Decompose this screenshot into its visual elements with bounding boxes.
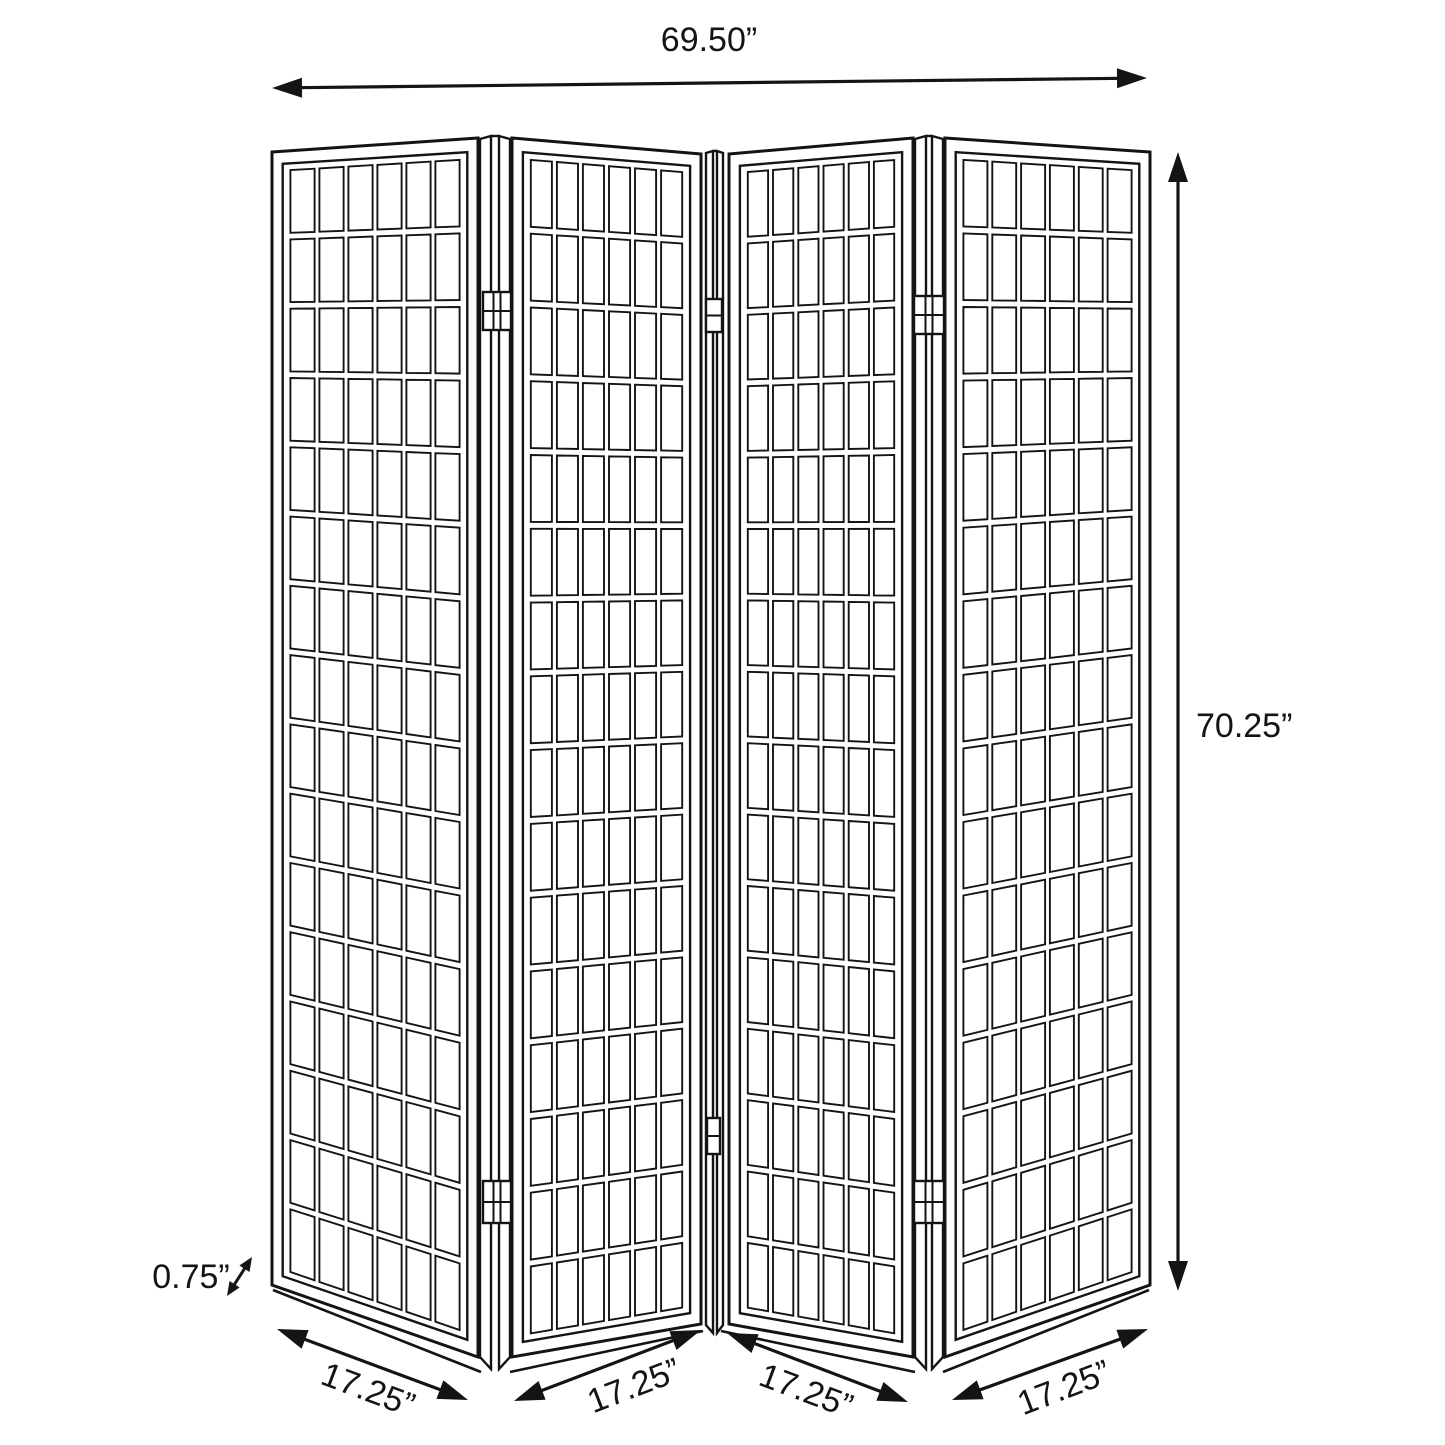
lattice-cell xyxy=(1021,236,1045,302)
lattice-cell xyxy=(290,239,314,303)
lattice-cell xyxy=(798,384,818,450)
lattice-cell xyxy=(435,1110,459,1183)
lattice-cell xyxy=(773,1247,793,1316)
lattice-cell xyxy=(798,1034,818,1102)
lattice-cell xyxy=(435,891,459,962)
lattice-cell xyxy=(824,674,844,741)
lattice-cell xyxy=(1108,1071,1132,1141)
panel-width-label-3: 17.25” xyxy=(754,1356,858,1425)
lattice-cell xyxy=(609,890,630,957)
lattice-cell xyxy=(798,962,818,1030)
lattice-cell xyxy=(661,529,682,594)
lattice-cell xyxy=(798,166,818,233)
lattice-cell xyxy=(531,308,552,376)
lattice-cell xyxy=(609,1107,630,1175)
lattice-cell xyxy=(557,967,578,1036)
lattice-cell xyxy=(748,886,768,953)
lattice-cell xyxy=(1021,1094,1045,1166)
lattice-cell xyxy=(849,1186,869,1255)
lattice-cell xyxy=(290,863,314,931)
lattice-cell xyxy=(963,233,987,300)
lattice-cell xyxy=(824,1110,844,1179)
lattice-cell xyxy=(1021,665,1045,733)
lattice-cell xyxy=(1079,1009,1103,1079)
lattice-cell xyxy=(748,1100,768,1168)
lattice-cell xyxy=(1050,803,1074,872)
lattice-cell xyxy=(849,529,869,596)
lattice-cell xyxy=(773,457,793,523)
lattice-cell xyxy=(849,456,869,523)
lattice-cell xyxy=(377,236,401,302)
lattice-cell xyxy=(849,967,869,1036)
lattice-cell xyxy=(609,673,630,739)
lattice-cell xyxy=(849,748,869,815)
lattice-cell xyxy=(849,894,869,962)
panel-width-label-2: 17.25” xyxy=(582,1351,686,1421)
arrowhead xyxy=(876,1382,908,1402)
lattice-cell xyxy=(348,1228,372,1300)
diagram: 69.50”70.25”0.75”17.25”17.25”17.25”17.25… xyxy=(0,0,1445,1445)
lattice-cell xyxy=(1079,659,1103,726)
lattice-cell xyxy=(557,162,578,230)
lattice-cell xyxy=(609,311,630,378)
lattice-cell xyxy=(874,1263,894,1333)
lattice-cell xyxy=(661,242,682,308)
lattice-cell xyxy=(319,238,343,302)
lattice-cell xyxy=(635,673,656,739)
lattice-cell xyxy=(963,818,987,889)
lattice-cell xyxy=(406,307,430,373)
lattice-cell xyxy=(992,1246,1016,1320)
lattice-cell xyxy=(348,874,372,943)
lattice-cell xyxy=(635,385,656,451)
lattice-cell xyxy=(1021,379,1045,445)
lattice-cell xyxy=(661,314,682,380)
lattice-cell xyxy=(290,169,314,233)
lattice-cell xyxy=(435,818,459,889)
lattice-cell xyxy=(406,669,430,738)
lattice-cell xyxy=(824,164,844,232)
lattice-cell xyxy=(290,1209,314,1280)
lattice-cell xyxy=(1021,951,1045,1022)
lattice-cell xyxy=(406,741,430,810)
hinge-icon xyxy=(483,1181,511,1223)
lattice-cell xyxy=(661,457,682,522)
lattice-cell xyxy=(1108,863,1132,931)
lattice-cell xyxy=(824,892,844,960)
lattice-cell xyxy=(531,529,552,596)
lattice-cell xyxy=(773,168,793,235)
lattice-cell xyxy=(635,313,656,379)
lattice-cell xyxy=(435,1256,459,1330)
lattice-cell xyxy=(635,744,656,810)
lattice-cell xyxy=(992,741,1016,810)
lattice-cell xyxy=(290,932,314,1001)
dimension-line xyxy=(297,78,1121,87)
arrowhead xyxy=(514,1381,546,1401)
lattice-cell xyxy=(635,529,656,594)
lattice-cell xyxy=(963,1183,987,1257)
lattice-cell xyxy=(319,869,343,938)
lattice-cell xyxy=(377,163,401,229)
panel-thickness-dimension: 0.75” xyxy=(152,1257,252,1296)
lattice-cell xyxy=(377,308,401,373)
lattice-cell xyxy=(435,745,459,815)
lattice-cell xyxy=(661,743,682,809)
lattice-cell xyxy=(557,1113,578,1182)
lattice-cell xyxy=(1050,1016,1074,1087)
lattice-cell xyxy=(849,1113,869,1182)
lattice-cell xyxy=(992,452,1016,519)
lattice-cell xyxy=(661,672,682,738)
lattice-cell xyxy=(377,737,401,806)
hinge-icon xyxy=(914,296,944,334)
lattice-cell xyxy=(348,308,372,373)
lattice-cell xyxy=(348,379,372,444)
lattice-cell xyxy=(406,1246,430,1320)
lattice-cell xyxy=(377,379,401,445)
lattice-cell xyxy=(874,1190,894,1260)
lattice-cell xyxy=(661,815,682,881)
lattice-cell xyxy=(773,601,793,667)
lattice-cell xyxy=(290,1071,314,1141)
lattice-cell xyxy=(290,724,314,791)
lattice-cell xyxy=(348,945,372,1015)
lattice-cell xyxy=(635,1247,656,1316)
lattice-cell xyxy=(406,1174,430,1247)
lattice-cell xyxy=(531,455,552,522)
hinge-icon xyxy=(914,1181,944,1223)
lattice-cell xyxy=(1050,1228,1074,1300)
lattice-cell xyxy=(992,380,1016,446)
lattice-cell xyxy=(290,309,314,372)
lattice-cell xyxy=(319,659,343,726)
lattice-cell xyxy=(963,453,987,521)
lattice-cell xyxy=(348,1157,372,1229)
lattice-cell xyxy=(824,819,844,886)
arrowhead xyxy=(669,1330,701,1350)
lattice-cell xyxy=(748,1172,768,1240)
lattice-cell xyxy=(798,311,818,378)
lattice-cell xyxy=(348,450,372,516)
lattice-cell xyxy=(1108,1209,1132,1280)
lattice-cell xyxy=(1050,662,1074,729)
panel-width-label-4: 17.25” xyxy=(1012,1353,1116,1423)
overall-height-dimension: 70.25” xyxy=(1168,152,1292,1291)
lattice-cell xyxy=(583,1255,604,1324)
lattice-cell xyxy=(874,1116,894,1186)
lattice-cell xyxy=(1079,448,1103,513)
lattice-cell xyxy=(773,385,793,451)
lattice-cell xyxy=(583,383,604,450)
lattice-cell xyxy=(1021,1023,1045,1094)
lattice-cell xyxy=(1021,594,1045,661)
lattice-cell xyxy=(661,1243,682,1311)
arrowhead xyxy=(1168,152,1188,182)
lattice-cell xyxy=(963,1110,987,1183)
lattice-cell xyxy=(557,894,578,962)
lattice-cell xyxy=(435,307,459,374)
lattice-cell xyxy=(963,380,987,447)
lattice-cell xyxy=(557,821,578,889)
lattice-cell xyxy=(319,589,343,655)
lattice-cell xyxy=(531,970,552,1039)
lattice-cell xyxy=(1079,589,1103,655)
lattice-cell xyxy=(1108,586,1132,652)
lattice-cell xyxy=(798,239,818,306)
lattice-cell xyxy=(531,1190,552,1260)
lattice-cell xyxy=(319,448,343,513)
lattice-cell xyxy=(1050,1157,1074,1229)
lattice-cell xyxy=(963,1037,987,1109)
lattice-cell xyxy=(849,309,869,376)
overall-width-dimension: 69.50” xyxy=(272,21,1147,98)
lattice-cell xyxy=(1050,874,1074,943)
lattice-cell xyxy=(773,673,793,739)
lattice-cell xyxy=(1108,309,1132,372)
lattice-cell xyxy=(824,456,844,522)
lattice-cell xyxy=(1079,1079,1103,1149)
lattice-cell xyxy=(290,794,314,861)
lattice-cell xyxy=(557,309,578,376)
panel-2 xyxy=(512,138,701,1357)
lattice-cell xyxy=(1108,794,1132,861)
lattice-cell xyxy=(609,601,630,667)
lattice-cell xyxy=(824,965,844,1033)
lattice-cell xyxy=(435,599,459,668)
lattice-cell xyxy=(1050,1086,1074,1157)
lattice-cell xyxy=(435,964,459,1036)
lattice-cell xyxy=(635,888,656,955)
lattice-cell xyxy=(1079,238,1103,302)
lattice-cell xyxy=(748,815,768,881)
hinge-icon xyxy=(706,299,722,332)
room-divider-dimension-diagram: 69.50”70.25”0.75”17.25”17.25”17.25”17.25… xyxy=(0,0,1445,1445)
lattice-cell xyxy=(849,162,869,230)
lattice-cell xyxy=(1108,655,1132,721)
lattice-cell xyxy=(849,602,869,669)
lattice-cell xyxy=(963,160,987,227)
lattice-cell xyxy=(435,1183,459,1257)
lattice-cell xyxy=(1079,799,1103,867)
lattice-cell xyxy=(1050,945,1074,1015)
lattice-cell xyxy=(748,743,768,809)
lattice-cell xyxy=(874,896,894,965)
lattice-cell xyxy=(635,601,656,667)
lattice-cell xyxy=(377,880,401,950)
lattice-cell xyxy=(748,386,768,451)
lattice-cell xyxy=(798,890,818,957)
lattice-cell xyxy=(377,1237,401,1310)
lattice-cell xyxy=(557,382,578,449)
lattice-cell xyxy=(1079,869,1103,938)
lattice-cell xyxy=(1021,163,1045,229)
lattice-cell xyxy=(583,892,604,960)
lattice-cell xyxy=(992,885,1016,956)
arrowhead xyxy=(1117,68,1147,88)
lattice-cell xyxy=(992,307,1016,373)
lattice-cell xyxy=(348,1016,372,1087)
lattice-cell xyxy=(609,746,630,813)
lattice-cell xyxy=(874,308,894,376)
panel-thickness-label: 0.75” xyxy=(152,1258,230,1296)
lattice-cell xyxy=(661,1029,682,1096)
lattice-cell xyxy=(849,382,869,449)
lattice-cell xyxy=(748,529,768,594)
lattice-cell xyxy=(583,965,604,1033)
lattice-cell xyxy=(1021,808,1045,877)
lattice-cell xyxy=(661,600,682,665)
lattice-cell xyxy=(849,821,869,889)
lattice-cell xyxy=(406,885,430,956)
lattice-cell xyxy=(435,672,459,741)
lattice-cell xyxy=(377,522,401,589)
lattice-cell xyxy=(1079,939,1103,1008)
lattice-cell xyxy=(748,242,768,308)
lattice-cell xyxy=(1108,932,1132,1000)
lattice-cell xyxy=(609,1179,630,1248)
lattice-cell xyxy=(377,808,401,877)
lattice-cell xyxy=(583,310,604,377)
lattice-cell xyxy=(992,162,1016,229)
lattice-cell xyxy=(319,1079,343,1149)
lattice-cell xyxy=(748,314,768,380)
lattice-cell xyxy=(773,1103,793,1171)
lattice-cell xyxy=(319,729,343,796)
lattice-cell xyxy=(319,308,343,372)
lattice-cell xyxy=(377,1166,401,1238)
lattice-cell xyxy=(874,160,894,228)
lattice-cell xyxy=(1050,237,1074,302)
lattice-cell xyxy=(963,964,987,1036)
lattice-cell xyxy=(1108,169,1132,233)
lattice-cell xyxy=(290,447,314,511)
lattice-cell xyxy=(874,602,894,669)
lattice-cell xyxy=(348,662,372,729)
lattice-cell xyxy=(824,747,844,814)
lattice-cell xyxy=(661,957,682,1024)
panel-1 xyxy=(272,138,478,1357)
lattice-cell xyxy=(635,960,656,1027)
lattice-cell xyxy=(1079,729,1103,796)
lattice-cell xyxy=(435,453,459,521)
lattice-cell xyxy=(874,969,894,1038)
lattice-cell xyxy=(849,235,869,303)
lattice-cell xyxy=(1050,520,1074,586)
lattice-cell xyxy=(798,1251,818,1320)
lattice-cell xyxy=(773,529,793,594)
lattice-cell xyxy=(1108,239,1132,303)
lattice-cell xyxy=(1021,737,1045,806)
lattice-cell xyxy=(557,1040,578,1109)
lattice-cell xyxy=(406,813,430,883)
lattice-cell xyxy=(377,665,401,733)
lattice-cell xyxy=(557,602,578,669)
hinge-icon xyxy=(707,1118,720,1154)
lattice-cell xyxy=(824,383,844,450)
lattice-cell xyxy=(635,1175,656,1243)
lattice-cell xyxy=(798,818,818,885)
lattice-cell xyxy=(319,1009,343,1079)
lattice-cell xyxy=(319,378,343,442)
lattice-cell xyxy=(531,234,552,302)
lattice-cell xyxy=(609,818,630,885)
lattice-cell xyxy=(583,674,604,741)
lattice-cell xyxy=(1079,519,1103,585)
lattice-cell xyxy=(406,1102,430,1174)
panel-3 xyxy=(729,138,913,1357)
lattice-cell xyxy=(406,380,430,446)
lattice-cell xyxy=(377,951,401,1022)
lattice-cell xyxy=(992,1030,1016,1102)
lattice-cell xyxy=(377,1023,401,1094)
lattice-cell xyxy=(1108,517,1132,582)
lattice-cell xyxy=(583,602,604,668)
lattice-cell xyxy=(992,1102,1016,1174)
lattice-cell xyxy=(635,1032,656,1100)
lattice-cell xyxy=(874,749,894,817)
lattice-cell xyxy=(1021,880,1045,950)
lattice-cell xyxy=(824,310,844,377)
lattice-cell xyxy=(557,235,578,303)
lattice-cell xyxy=(531,749,552,817)
lattice-cell xyxy=(435,160,459,227)
lattice-cell xyxy=(406,596,430,664)
lattice-cell xyxy=(609,962,630,1030)
lattice-cell xyxy=(1050,591,1074,658)
lattice-cell xyxy=(1079,1219,1103,1291)
lattice-cell xyxy=(992,669,1016,738)
lattice-cell xyxy=(661,1172,682,1240)
lattice-cell xyxy=(748,672,768,738)
arrowhead xyxy=(272,78,302,98)
lattice-cell xyxy=(609,456,630,522)
lattice-cell xyxy=(798,1107,818,1175)
overall-height-label: 70.25” xyxy=(1196,707,1292,745)
lattice-cell xyxy=(992,1174,1016,1247)
lattice-cell xyxy=(874,676,894,744)
lattice-cell xyxy=(1050,733,1074,801)
lattice-cell xyxy=(635,240,656,307)
lattice-cell xyxy=(290,1002,314,1071)
lattice-cell xyxy=(773,888,793,955)
lattice-cell xyxy=(849,1259,869,1329)
lattice-cell xyxy=(406,452,430,519)
lattice-cell xyxy=(531,160,552,228)
lattice-cell xyxy=(849,675,869,742)
lattice-cell xyxy=(748,1029,768,1096)
lattice-cell xyxy=(583,164,604,232)
lattice-cell xyxy=(583,456,604,522)
arrowhead xyxy=(727,1333,759,1353)
lattice-cell xyxy=(773,313,793,379)
lattice-cell xyxy=(348,165,372,231)
lattice-cell xyxy=(609,529,630,595)
lattice-cell xyxy=(1021,1166,1045,1238)
lattice-cell xyxy=(609,1034,630,1102)
lattice-cell xyxy=(748,957,768,1024)
lattice-cell xyxy=(773,744,793,810)
lattice-cell xyxy=(531,896,552,965)
lattice-cell xyxy=(1050,379,1074,444)
arrowhead xyxy=(1168,1261,1188,1291)
lattice-cell xyxy=(798,1179,818,1248)
lattice-cell xyxy=(609,384,630,450)
lattice-cell xyxy=(531,381,552,448)
lattice-cell xyxy=(874,455,894,522)
lattice-cell xyxy=(557,1186,578,1256)
lattice-cell xyxy=(773,1175,793,1243)
